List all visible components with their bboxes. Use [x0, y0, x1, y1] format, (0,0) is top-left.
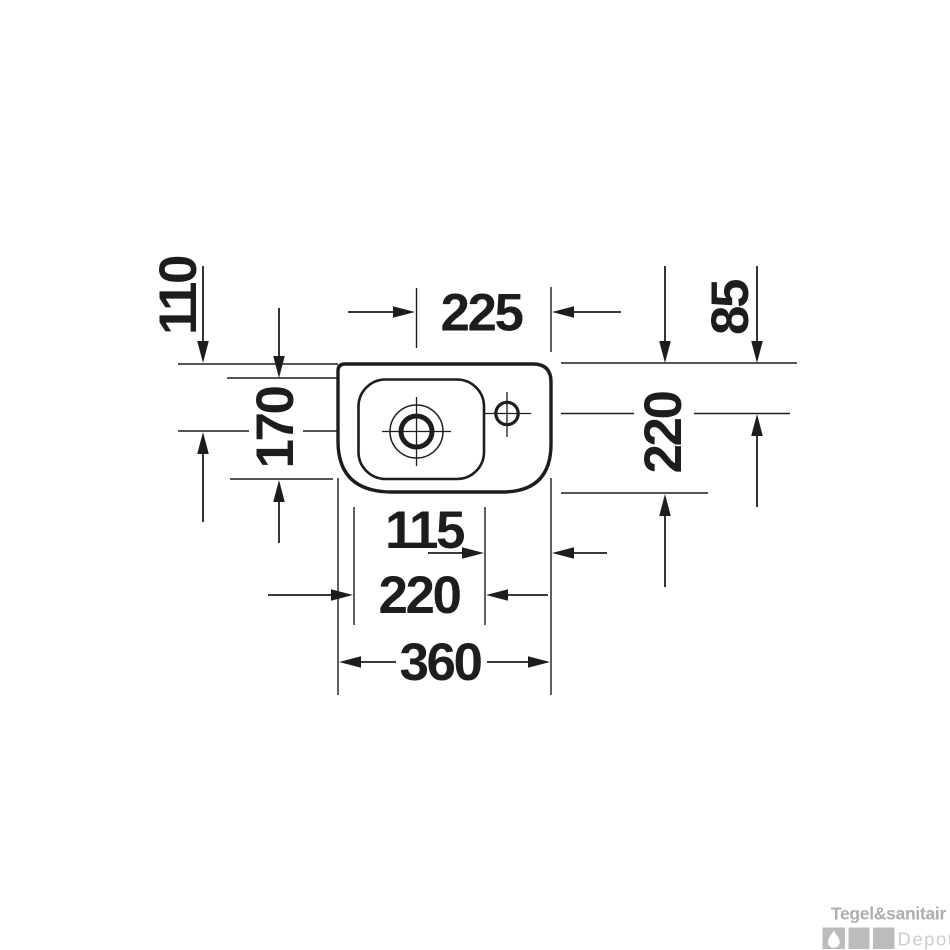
arrow-right-icon [462, 547, 484, 559]
arrow-left-icon [486, 589, 508, 601]
dim-label-top-to-tap: 85 [701, 280, 760, 335]
dim-label-bowl-depth: 170 [246, 387, 305, 469]
arrow-right-icon [331, 589, 353, 601]
arrow-up-icon [197, 432, 209, 454]
dim-label-tap-platform-width: 115 [385, 501, 464, 560]
dim-label-drain-to-right-edge: 225 [441, 284, 523, 343]
arrow-up-icon [751, 414, 763, 436]
watermark-tile [873, 928, 895, 950]
arrow-left-icon [552, 547, 574, 559]
dim-label-overall-width: 360 [400, 633, 482, 692]
watermark-sub-brand-text: Depot [898, 929, 950, 950]
dim-label-overall-depth: 220 [634, 392, 693, 474]
watermark: Tegel&sanitair Depot [823, 904, 950, 950]
washbasin-dimension-drawing-page: 110 225 85 170 220 115 220 360 Tegel&san… [0, 0, 950, 950]
arrow-left-icon [552, 306, 574, 318]
arrow-right-icon [528, 656, 550, 668]
dim-label-top-to-drain: 110 [149, 256, 208, 335]
arrow-up-icon [273, 480, 285, 502]
watermark-brand-text: Tegel&sanitair [831, 904, 947, 924]
watermark-tiles [823, 928, 895, 950]
arrow-down-icon [751, 341, 763, 363]
dim-label-bowl-width: 220 [379, 566, 461, 625]
arrow-right-icon [393, 306, 415, 318]
arrow-down-icon [197, 341, 209, 363]
arrow-up-icon [659, 494, 671, 516]
washbasin-dimension-drawing: 110 225 85 170 220 115 220 360 Tegel&san… [0, 0, 950, 950]
arrow-down-icon [273, 356, 285, 378]
basin-plan-view [338, 364, 551, 492]
arrow-down-icon [659, 341, 671, 363]
arrow-left-icon [339, 656, 361, 668]
watermark-tile [849, 928, 870, 950]
